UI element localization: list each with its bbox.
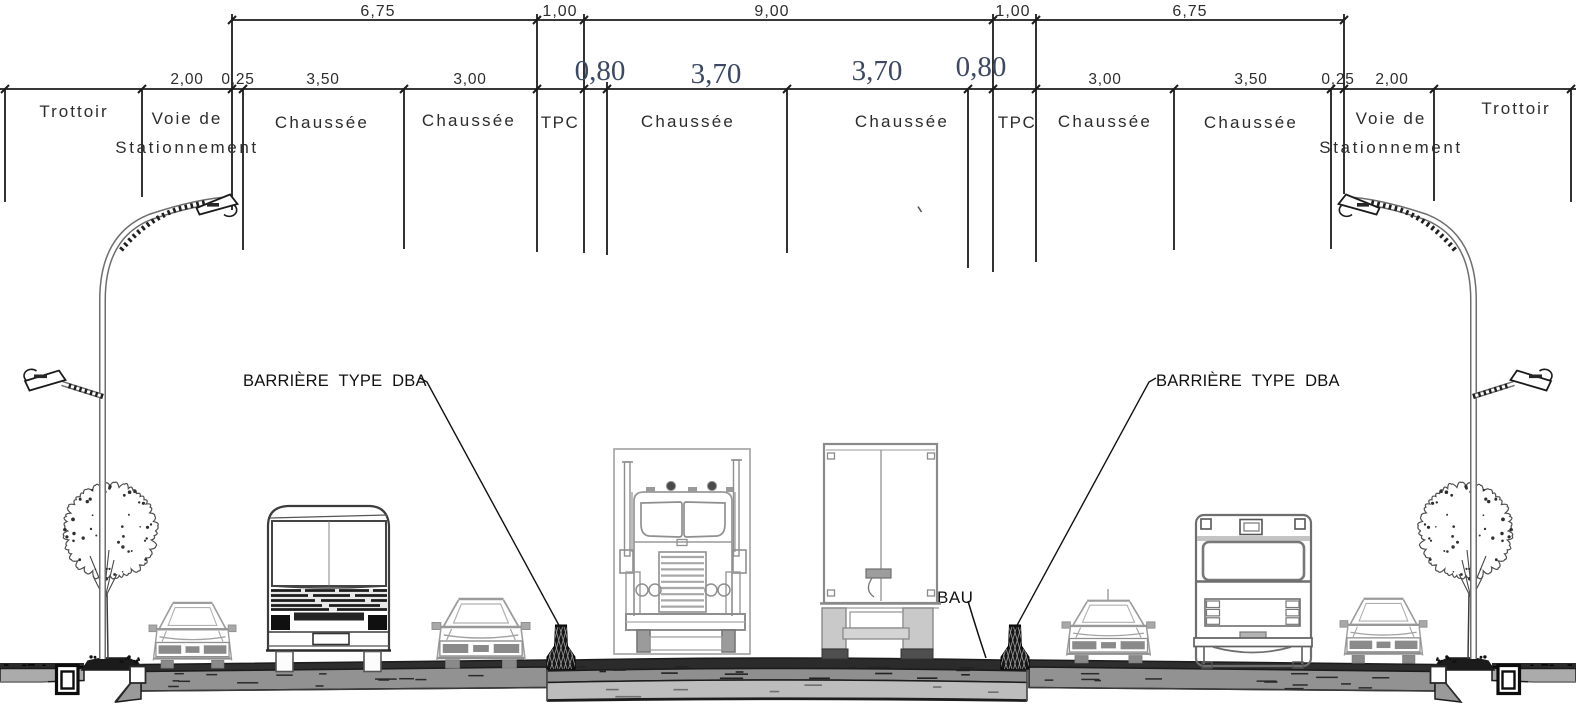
svg-text:0,80: 0,80 — [956, 51, 1007, 83]
svg-text:9,00: 9,00 — [754, 3, 789, 20]
svg-text:Chaussée: Chaussée — [1058, 112, 1152, 131]
svg-text:Trottoir: Trottoir — [39, 102, 108, 121]
svg-text:Trottoir: Trottoir — [1481, 99, 1550, 118]
svg-text:6,75: 6,75 — [360, 3, 395, 20]
svg-text:TPC: TPC — [998, 113, 1037, 132]
svg-text:3,50: 3,50 — [306, 71, 339, 88]
svg-text:Voie de: Voie de — [1356, 109, 1427, 128]
svg-text:BARRIÈRE TYPE DBA: BARRIÈRE TYPE DBA — [243, 371, 427, 390]
svg-text:3,70: 3,70 — [852, 55, 903, 87]
svg-text:6,75: 6,75 — [1172, 3, 1207, 20]
svg-text:Chaussée: Chaussée — [422, 111, 516, 130]
svg-text:3,70: 3,70 — [691, 58, 742, 90]
svg-text:2,00: 2,00 — [170, 71, 203, 88]
svg-text:0,25: 0,25 — [221, 71, 254, 88]
svg-text:Voie de: Voie de — [152, 109, 223, 128]
svg-text:BARRIÈRE TYPE DBA: BARRIÈRE TYPE DBA — [1156, 371, 1340, 390]
svg-text:1,00: 1,00 — [542, 3, 577, 20]
svg-text:0,25: 0,25 — [1321, 71, 1354, 88]
svg-text:Stationnement: Stationnement — [115, 138, 258, 157]
svg-text:Stationnement: Stationnement — [1319, 138, 1462, 157]
svg-text:2,00: 2,00 — [1375, 71, 1408, 88]
svg-text:Chaussée: Chaussée — [275, 113, 369, 132]
svg-text:Chaussée: Chaussée — [1204, 113, 1298, 132]
svg-text:3,00: 3,00 — [1088, 71, 1121, 88]
svg-text:1,00: 1,00 — [995, 3, 1030, 20]
svg-text:0,80: 0,80 — [575, 55, 626, 87]
svg-text:BAU: BAU — [937, 588, 973, 607]
svg-text:3,00: 3,00 — [453, 71, 486, 88]
svg-text:Chaussée: Chaussée — [641, 112, 735, 131]
svg-text:Chaussée: Chaussée — [855, 112, 949, 131]
svg-text:3,50: 3,50 — [1234, 71, 1267, 88]
svg-text:TPC: TPC — [541, 113, 580, 132]
